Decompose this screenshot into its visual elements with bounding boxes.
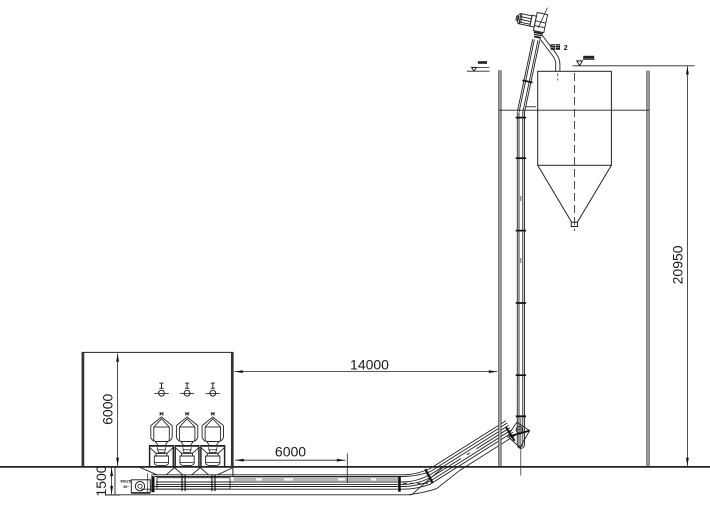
svg-text:M~: M~ bbox=[124, 484, 130, 489]
svg-text:20950: 20950 bbox=[669, 245, 685, 284]
svg-text:2: 2 bbox=[564, 45, 568, 52]
svg-text:6000: 6000 bbox=[100, 394, 116, 425]
svg-text:MS25: MS25 bbox=[121, 478, 132, 483]
svg-text:14000: 14000 bbox=[350, 357, 389, 373]
svg-text:1500: 1500 bbox=[93, 465, 109, 496]
svg-text:6000: 6000 bbox=[275, 443, 306, 459]
